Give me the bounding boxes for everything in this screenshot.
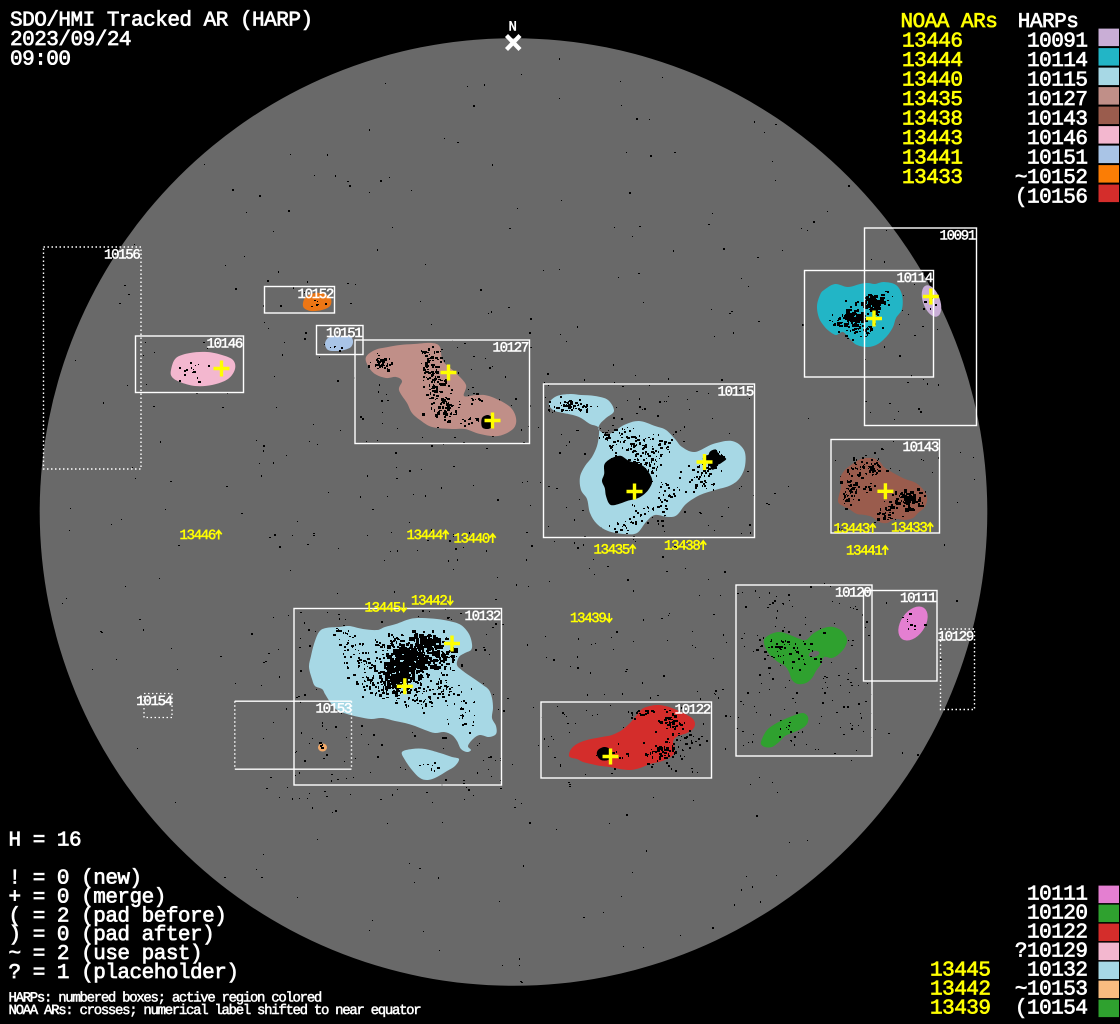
svg-text:10122: 10122: [674, 703, 710, 719]
svg-text:N: N: [509, 20, 517, 36]
svg-text:10151: 10151: [326, 326, 362, 342]
svg-text:10143: 10143: [902, 440, 938, 456]
svg-text:H = 16: H = 16: [9, 830, 82, 853]
svg-text:10156: 10156: [104, 248, 140, 264]
svg-text:13439: 13439: [930, 998, 991, 1021]
svg-text:13441: 13441: [846, 544, 882, 560]
svg-text:13433: 13433: [891, 521, 927, 537]
svg-text:13438: 13438: [664, 539, 700, 555]
svg-text:10152: 10152: [297, 287, 333, 303]
svg-text:13445: 13445: [365, 601, 401, 617]
svg-text:(10154: (10154: [1015, 998, 1088, 1021]
svg-text:13446: 13446: [180, 528, 216, 544]
svg-text:10091: 10091: [939, 229, 975, 245]
svg-text:13435: 13435: [594, 543, 630, 559]
svg-text:13443: 13443: [834, 522, 870, 538]
svg-text:10153: 10153: [315, 702, 351, 718]
svg-text:(10156: (10156: [1015, 187, 1088, 210]
svg-text:13440: 13440: [454, 532, 490, 548]
svg-text:10114: 10114: [896, 271, 932, 287]
svg-text:10132: 10132: [464, 609, 500, 625]
svg-text:10146: 10146: [206, 337, 242, 353]
svg-text:13442: 13442: [411, 594, 447, 610]
svg-text:10127: 10127: [492, 341, 528, 357]
svg-text:10120: 10120: [835, 586, 871, 602]
svg-text:10154: 10154: [136, 694, 172, 710]
svg-text:13444: 13444: [407, 528, 443, 544]
svg-text:13439: 13439: [570, 611, 606, 627]
svg-text:10129: 10129: [937, 630, 973, 646]
svg-text:NOAA ARs: crosses; numerical l: NOAA ARs: crosses; numerical label shift…: [9, 1003, 422, 1019]
svg-text:? = 1 (placeholder): ? = 1 (placeholder): [9, 962, 239, 985]
svg-text:09:00: 09:00: [10, 49, 71, 72]
svg-text:13433: 13433: [902, 167, 963, 190]
svg-text:10111: 10111: [900, 591, 936, 607]
svg-text:10115: 10115: [717, 385, 753, 401]
